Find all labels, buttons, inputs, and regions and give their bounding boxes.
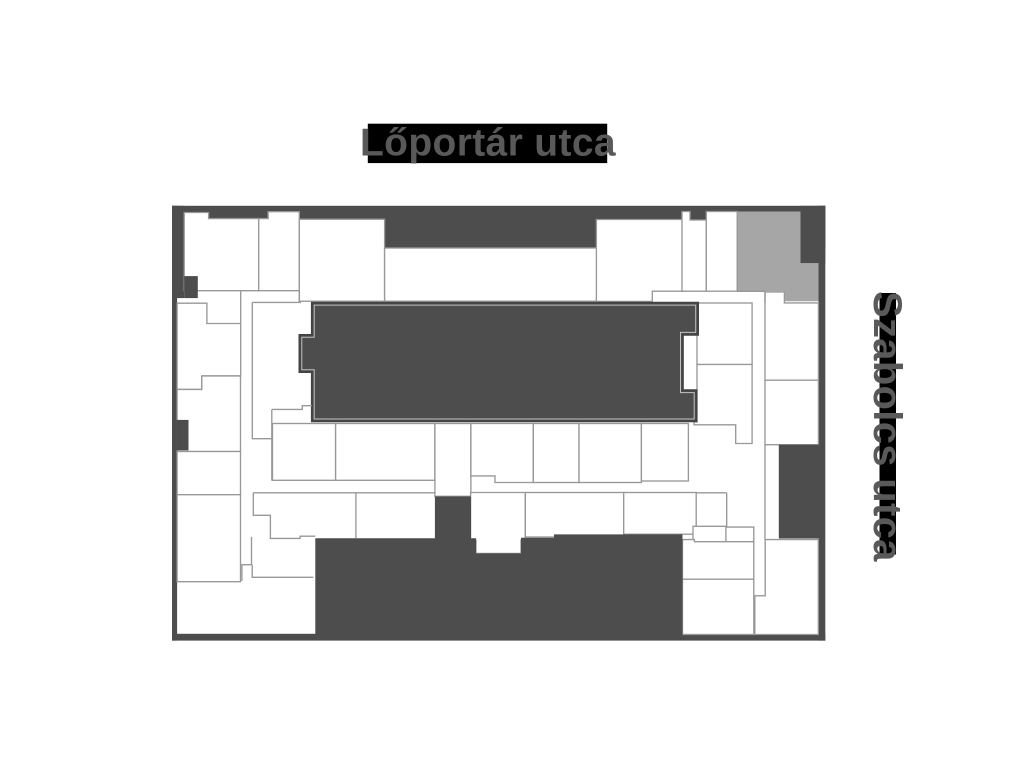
svg-text:Szabolcs utca: Szabolcs utca (865, 291, 909, 562)
svg-text:Lőportár utca: Lőportár utca (360, 121, 616, 164)
